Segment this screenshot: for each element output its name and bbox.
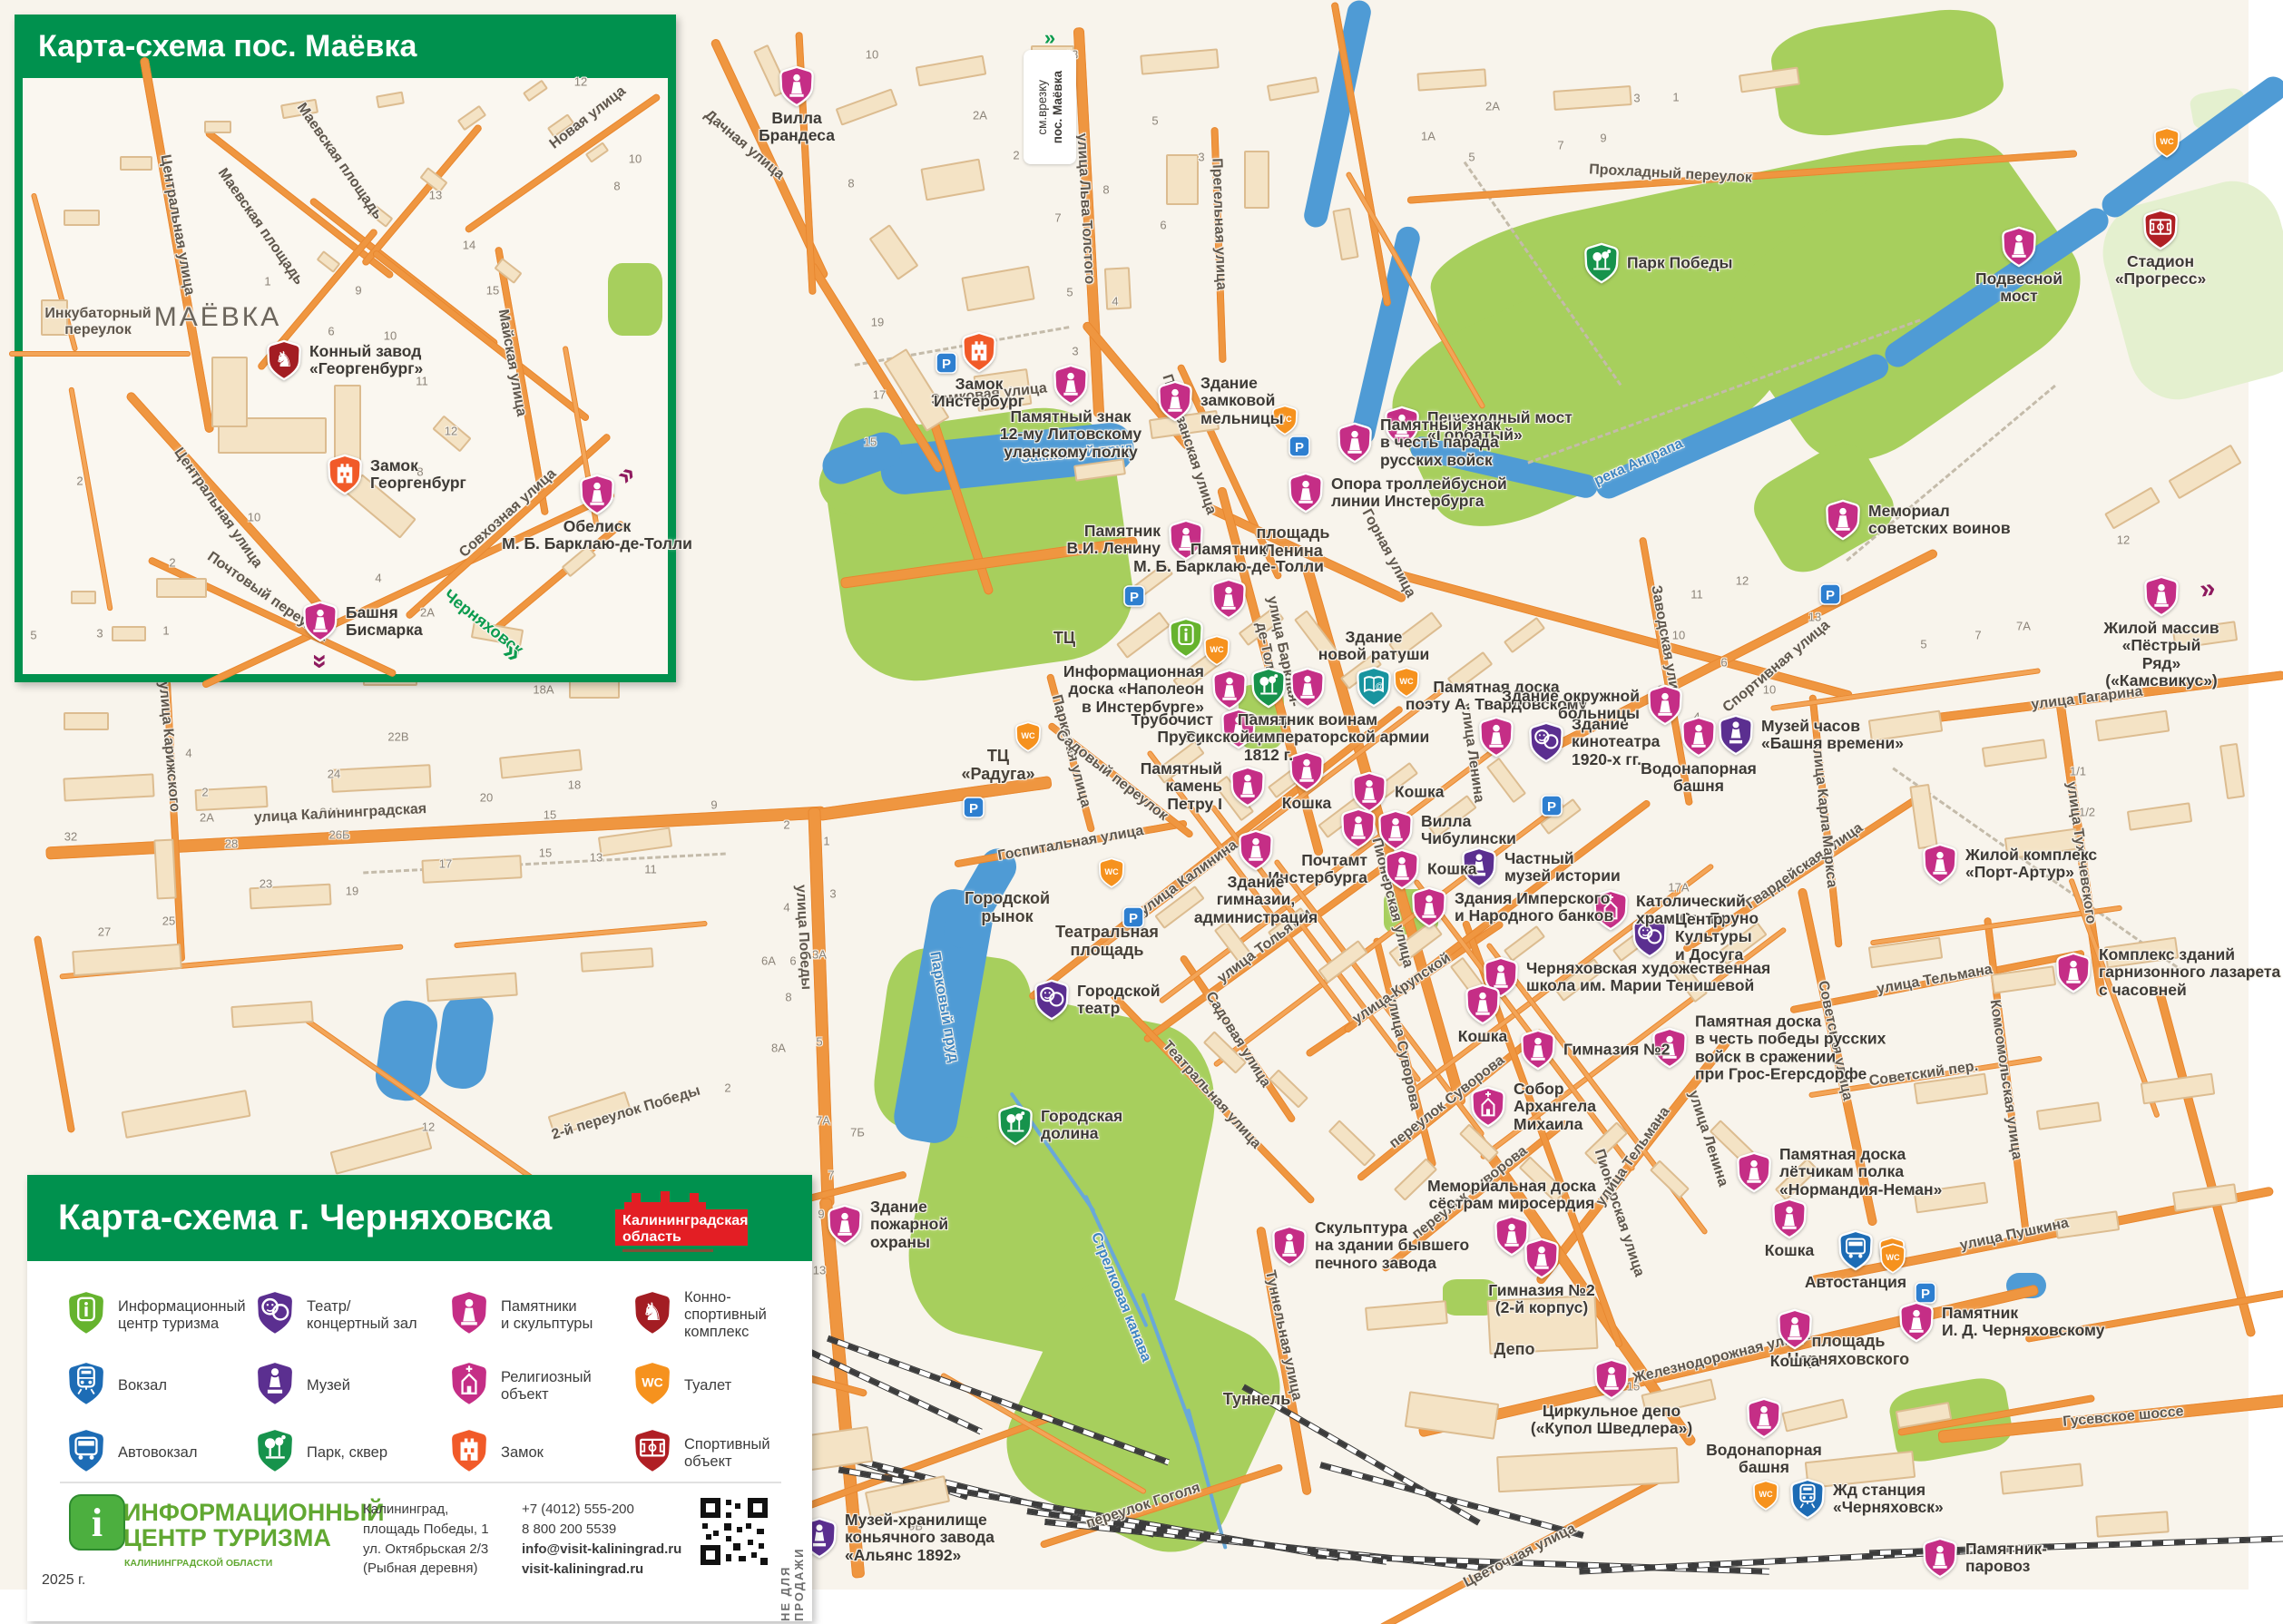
house-number: 7 xyxy=(828,1169,834,1182)
house-number: 20 xyxy=(480,791,493,805)
gorodskaya-dolina-park-icon[interactable] xyxy=(997,1104,1034,1147)
pamyatnik-barklau-label: Памятник М. Б. Барклаю-де-Толли xyxy=(1133,541,1324,576)
memorialnaya-doska-sestram-label: Мемориальная доска сёстрам миросердия xyxy=(1427,1178,1596,1213)
park-pobedy-park-icon[interactable] xyxy=(1583,242,1620,285)
religious-icon xyxy=(448,1359,490,1413)
znak-parada-russkih-voysk-label: Памятный знак в честь парада русских вой… xyxy=(1380,416,1501,469)
parking-icon[interactable]: P xyxy=(936,352,957,374)
legend-item-wc: WCТуалет xyxy=(632,1359,731,1413)
house-number: 14 xyxy=(463,239,475,252)
skulptura-pechnogo-zavoda-label: Скульптура на здании бывшего печного зав… xyxy=(1315,1219,1469,1272)
zamok-georgenburg-label: Замок Георгенбург xyxy=(370,457,466,493)
hudozhestvennaya-shkola-label: Черняховская художественная школа им. Ма… xyxy=(1526,960,1770,995)
gorodskoy-teatr-theatre-icon[interactable] xyxy=(1034,979,1070,1022)
zdanie-kinoteatra-theatre-icon[interactable] xyxy=(1528,721,1564,764)
gorodskaya-dolina-label: Городская долина xyxy=(1041,1108,1122,1143)
house-number: 12 xyxy=(574,75,587,89)
zdanie-zamkovoy-melnitsy-label: Здание замковой мельницы xyxy=(1200,375,1284,427)
wc-toilet-icon[interactable]: WC xyxy=(1752,1480,1779,1511)
koshka-4-label: Кошка xyxy=(1458,1028,1507,1045)
legend-item-horse: ♞Конно- спортивный комплекс xyxy=(632,1288,767,1342)
house-number: 8 xyxy=(848,177,854,191)
place-label: Городской рынок xyxy=(965,889,1050,925)
konny-zavod-georgenburg-label: Конный завод «Георгенбург» xyxy=(309,343,423,378)
koshka-2-label: Кошка xyxy=(1395,783,1444,800)
legend-item-label: Религиозный объект xyxy=(501,1369,592,1404)
house-number: 2А xyxy=(200,811,214,825)
place-label: Депо xyxy=(1494,1340,1535,1358)
info-doska-napoleon-monument-icon[interactable] xyxy=(1211,669,1248,711)
legend-item-train: Вокзал xyxy=(65,1359,167,1413)
house-number: 15 xyxy=(544,808,556,822)
house-number: 19 xyxy=(346,885,358,898)
house-number: 4 xyxy=(783,901,789,915)
house-number: 5 xyxy=(1066,286,1073,299)
svg-text:P: P xyxy=(1826,588,1835,603)
house-number: 32 xyxy=(64,830,77,844)
legend-item-label: Замок xyxy=(501,1444,544,1462)
house-number: 8 xyxy=(613,180,620,193)
house-number: 9 xyxy=(818,1208,824,1221)
legend-item-label: Вокзал xyxy=(118,1377,167,1394)
building xyxy=(71,591,96,604)
building xyxy=(120,156,152,171)
info-doska-napoleon-label: Информационная доска «Наполеон в Инстерб… xyxy=(1063,663,1204,716)
svg-text:♞: ♞ xyxy=(274,347,293,372)
centr-kultury-i-dosuga-label: Центр Культуры и Досуга xyxy=(1675,911,1752,964)
podvesnoy-most-monument-icon[interactable] xyxy=(2001,226,2037,269)
house-number: 10 xyxy=(1672,629,1685,642)
pamyatnik-voinam-imperatorskoy-armii-monument-icon[interactable] xyxy=(1289,667,1326,709)
mayovka-ref-line2: см.врезку xyxy=(1035,80,1049,135)
svg-text:P: P xyxy=(969,801,978,817)
znak-12-litovskomu-polku-label: Памятный знак 12-му Литовскому уланскому… xyxy=(1000,408,1141,461)
parking-icon[interactable]: P xyxy=(1819,583,1841,605)
house-number: 19 xyxy=(871,316,884,329)
vodonapornaya-bashnya-centr-label: Водонапорная башня xyxy=(1641,760,1757,796)
house-number: 15 xyxy=(486,284,499,298)
vodonapornaya-bashnya-centr-monument-icon[interactable] xyxy=(1680,716,1717,758)
house-number: 3А xyxy=(812,948,827,962)
house-number: 9 xyxy=(1600,132,1606,145)
villa-chibulinski-label: Вилла Чибулински xyxy=(1421,813,1516,848)
legend-item-park: Парк, сквер xyxy=(254,1426,387,1480)
svg-text:P: P xyxy=(1130,590,1139,605)
wc-toilet-icon[interactable]: WC xyxy=(2153,127,2180,159)
footer-address: Калининград, площадь Победы, 1 ул. Октяб… xyxy=(363,1500,489,1579)
place-label: Туннель xyxy=(1223,1390,1291,1408)
building xyxy=(1166,154,1199,205)
house-number: 2 xyxy=(201,786,208,799)
stadion-progress-label: Стадион «Прогресс» xyxy=(2115,253,2206,289)
gimnaziya-2-korpus-monument-icon[interactable] xyxy=(1524,1238,1560,1280)
house-number: 26Б xyxy=(329,828,350,842)
opora-trolleybusnoy-linii-label: Опора троллейбусной линии Инстербурга xyxy=(1331,475,1507,511)
park-pobedy-label: Парк Победы xyxy=(1627,254,1732,271)
legend-item-museum: Музей xyxy=(254,1359,350,1413)
house-number: 9 xyxy=(355,284,361,298)
zdanie-gimnazii-administratsiya-label: Здание гимназии, администрация xyxy=(1194,874,1318,926)
legend-item-sport: Спортивный объект xyxy=(632,1426,770,1480)
house-number: 17 xyxy=(439,857,452,871)
castle-icon xyxy=(448,1426,490,1480)
house-number: 7А xyxy=(816,1114,830,1128)
building xyxy=(112,626,146,641)
house-number: 10 xyxy=(629,152,642,166)
svg-text:WC: WC xyxy=(2160,137,2174,146)
pamyatnik-chernyahovskomu-monument-icon[interactable] xyxy=(1898,1301,1935,1344)
house-number: 11 xyxy=(644,863,657,876)
house-number: 18 xyxy=(568,778,581,792)
place-label: ТЦ xyxy=(1053,629,1075,647)
house-number: 13 xyxy=(429,189,442,202)
koshka-1-label: Кошка xyxy=(1282,795,1331,812)
house-number: 4 xyxy=(375,572,381,585)
mayovka-reference-note: » см.врезку пос. Маёвка xyxy=(1024,50,1076,164)
obelisk-barklau-de-tolli-monument-icon[interactable] xyxy=(579,474,615,516)
doska-normandiya-neman-monument-icon[interactable] xyxy=(1736,1151,1772,1194)
road xyxy=(9,351,191,357)
house-number: 8 xyxy=(785,991,791,1004)
footer-links[interactable]: info@visit-kaliningrad.ru visit-kalining… xyxy=(522,1540,681,1580)
museum-icon xyxy=(254,1359,296,1413)
konny-zavod-georgenburg-horse-icon[interactable]: ♞ xyxy=(266,339,302,382)
street-label: Инкубаторный переулок xyxy=(44,306,151,338)
pestry-ryad-label: Жилой массив «Пёстрый Ряд» («Камсвикус») xyxy=(2101,620,2222,690)
skulptura-pechnogo-zavoda-monument-icon[interactable] xyxy=(1271,1225,1308,1267)
house-number: 3 xyxy=(96,627,103,641)
pamyatnik-chernyahovskomu-label: Памятник И. Д. Черняховскому xyxy=(1942,1305,2104,1340)
house-number: 7 xyxy=(1974,629,1981,642)
house-number: 10 xyxy=(384,329,397,343)
zdaniya-imperskogo-i-narodnogo-bankov-monument-icon[interactable] xyxy=(1411,886,1447,929)
house-number: 7А xyxy=(2016,620,2031,633)
divider xyxy=(60,1482,781,1483)
house-number: 5 xyxy=(1920,638,1926,651)
house-number: 12 xyxy=(1736,574,1749,588)
house-number: 2 xyxy=(724,1081,730,1095)
svg-text:i: i xyxy=(92,1501,103,1545)
legend-items: Информационный центр туризмаТеатр/ конце… xyxy=(27,1261,812,1488)
villa-chibulinski-monument-icon[interactable] xyxy=(1377,809,1414,852)
org-title: ИНФОРМАЦИОННЫЙЦЕНТР ТУРИЗМА xyxy=(123,1500,385,1551)
zhd-stantsiya-chernyahovsk-label: Жд станция «Черняховск» xyxy=(1833,1482,1944,1517)
svg-text:область: область xyxy=(622,1229,681,1245)
footer-phones: +7 (4012) 555-200 8 800 200 5539 xyxy=(522,1500,634,1540)
house-number: 27 xyxy=(98,925,111,939)
theatre-icon xyxy=(254,1288,296,1342)
house-number: 24 xyxy=(328,768,340,781)
koshka-6-monument-icon[interactable] xyxy=(1777,1308,1813,1351)
house-number: 1 xyxy=(162,624,169,638)
vodonapornaya-bashnya-stantsiya-monument-icon[interactable] xyxy=(1746,1397,1782,1440)
koshka-3-label: Кошка xyxy=(1427,860,1476,877)
legend-item-religious: Религиозный объект xyxy=(448,1359,592,1413)
house-number: 2 xyxy=(783,818,789,832)
house-number: 15 xyxy=(864,435,877,449)
house-number: 4 xyxy=(185,747,191,760)
house-number: 1 xyxy=(264,275,270,289)
building xyxy=(64,210,100,226)
pamyatnik-barklau-monument-icon[interactable] xyxy=(1210,578,1247,621)
wc-toilet-icon[interactable]: WC xyxy=(1879,1243,1906,1275)
znak-12-litovskomu-polku-monument-icon[interactable] xyxy=(1053,364,1089,406)
monument-icon xyxy=(448,1288,490,1342)
gorodskoy-teatr-label: Городской театр xyxy=(1077,983,1160,1018)
house-number: 3 xyxy=(1072,345,1078,358)
mayovka-ref-line1: пос. Маёвка xyxy=(1051,71,1064,143)
building xyxy=(64,712,109,730)
lazaret-label: Комплекс зданий гарнизонного лазарета с … xyxy=(2099,946,2280,999)
port-artur-label: Жилой комплекс «Порт-Артур» xyxy=(1965,846,2097,882)
house-number: 2 xyxy=(76,474,83,488)
skver-geroev-1812-park-icon[interactable] xyxy=(1250,667,1287,709)
legend-item-label: Информационный центр туризма xyxy=(118,1298,246,1333)
house-number: 10 xyxy=(248,511,260,524)
map-document: Дачная улицаулица Льва ТолстогоПрегельна… xyxy=(0,0,2283,1624)
legend-panel: Карта-схема г. Черняховска Калининградск… xyxy=(27,1175,812,1621)
house-number: 12 xyxy=(2117,533,2130,547)
park-area xyxy=(608,263,662,336)
legend-item-label: Парк, сквер xyxy=(307,1444,387,1462)
tourism-info-logo: i xyxy=(69,1494,125,1565)
house-number: 2А xyxy=(1485,100,1500,113)
parking-icon[interactable]: P xyxy=(1541,795,1563,817)
villa-brandesa-monument-icon[interactable] xyxy=(779,65,815,108)
svg-text:@: @ xyxy=(1376,680,1385,690)
opora-trolleybusnoy-linii-monument-icon[interactable] xyxy=(1288,472,1324,514)
house-number: 2 xyxy=(169,556,175,570)
svg-text:P: P xyxy=(1295,440,1304,455)
doska-gros-egersdorf-label: Памятная доска в честь победы русских во… xyxy=(1695,1013,1886,1083)
legend-item-bus: Автовокзал xyxy=(65,1426,198,1480)
svg-text:P: P xyxy=(1129,911,1138,926)
koshka-3-monument-icon[interactable] xyxy=(1384,848,1420,891)
obelisk-barklau-de-tolli-label: Обелиск М. Б. Барклаю-де-Толли xyxy=(502,518,692,553)
building xyxy=(211,357,248,427)
pamyatny-kamen-petru-label: Памятный камень Петру I xyxy=(1141,760,1222,813)
svg-text:WC: WC xyxy=(1759,1490,1773,1499)
parking-icon[interactable]: P xyxy=(963,797,985,818)
legend-item-monument: Памятники и скульптуры xyxy=(448,1288,593,1342)
house-number: 5 xyxy=(816,1035,822,1049)
legend-item-label: Театр/ концертный зал xyxy=(307,1298,417,1333)
qr-code xyxy=(697,1494,771,1573)
port-artur-monument-icon[interactable] xyxy=(1922,843,1958,885)
house-number: 5 xyxy=(1468,151,1475,164)
avtostantsiya-label: Автостанция xyxy=(1805,1274,1906,1291)
sobor-arhangela-mihaila-label: Собор Архангела Михаила xyxy=(1514,1081,1596,1133)
inset-header: Карта-схема пос. Маёвка xyxy=(15,15,676,78)
sport-icon xyxy=(632,1426,673,1480)
horse-icon: ♞ xyxy=(632,1288,673,1342)
house-number: 5 xyxy=(1151,114,1158,128)
house-number: 7 xyxy=(1054,211,1061,225)
svg-text:WC: WC xyxy=(1886,1253,1900,1262)
zhd-stantsiya-chernyahovsk-train-icon[interactable] xyxy=(1789,1478,1826,1521)
building xyxy=(1244,151,1269,209)
zdanie-okruzhnoy-bolnitsy-label: Здание окружной больницы xyxy=(1502,688,1640,723)
zdanie-novoy-ratushi-label: Здание новой ратуши xyxy=(1318,629,1430,664)
house-number: 18А xyxy=(533,683,554,697)
koshka-5-monument-icon[interactable] xyxy=(1771,1198,1808,1240)
house-number: 1А xyxy=(1421,130,1435,143)
svg-text:P: P xyxy=(1547,799,1556,815)
park-icon xyxy=(254,1426,296,1480)
legend-item-castle: Замок xyxy=(448,1426,544,1480)
sobor-arhangela-mihaila-religious-icon[interactable] xyxy=(1470,1086,1506,1129)
svg-text:WC: WC xyxy=(1021,731,1035,740)
svg-text:♞: ♞ xyxy=(642,1298,663,1326)
stadion-progress-sport-icon[interactable] xyxy=(2142,209,2179,251)
parking-icon[interactable]: P xyxy=(1288,435,1310,457)
legend-item-label: Туалет xyxy=(684,1377,731,1394)
house-number: 2 xyxy=(1013,149,1019,162)
house-number: 28 xyxy=(225,837,238,851)
zamok-insterburg-castle-icon[interactable] xyxy=(961,331,997,374)
zdaniya-imperskogo-i-narodnogo-bankov-label: Здания Имперского и Народного банков xyxy=(1455,890,1613,925)
inset-title: Карта-схема пос. Маёвка xyxy=(15,29,416,64)
memorial-sovetskih-voinov-label: Мемориал советских воинов xyxy=(1868,503,2011,538)
avtostantsiya-bus-icon[interactable] xyxy=(1837,1229,1874,1272)
legend-item-info: Информационный центр туризма xyxy=(65,1288,246,1342)
house-number: 3 xyxy=(829,887,836,901)
house-number: 9 xyxy=(710,798,717,812)
train-icon xyxy=(65,1359,107,1413)
parking-icon[interactable]: P xyxy=(1122,906,1144,928)
house-number: 6 xyxy=(1160,219,1166,232)
vodonapornaya-bashnya-stantsiya-label: Водонапорная башня xyxy=(1706,1442,1822,1477)
znak-parada-russkih-voysk-monument-icon[interactable] xyxy=(1337,422,1373,465)
pamyatnik-parovoz-label: Памятник- паровоз xyxy=(1965,1541,2047,1576)
house-number: 2А xyxy=(973,109,987,122)
info-centr-turizma-info-icon[interactable] xyxy=(1168,617,1204,660)
building xyxy=(156,578,207,598)
house-number: 25 xyxy=(162,915,175,928)
zamok-georgenburg-castle-icon[interactable] xyxy=(327,454,363,496)
legend-item-label: Автовокзал xyxy=(118,1444,198,1462)
pochtamt-insterburga-monument-icon[interactable] xyxy=(1340,807,1377,850)
zdanie-novoy-ratushi-book-icon[interactable]: @ xyxy=(1356,666,1392,709)
info-icon xyxy=(65,1288,107,1342)
house-number: 10 xyxy=(866,48,878,62)
house-number: 7Б xyxy=(850,1126,865,1140)
podvesnoy-most-label: Подвесной мост xyxy=(1975,270,2063,306)
house-number: 8А xyxy=(771,1042,786,1055)
svg-text:P: P xyxy=(942,357,951,372)
house-number: 6А xyxy=(761,954,776,968)
house-number: 13 xyxy=(590,851,603,865)
house-number: 4 xyxy=(1112,295,1118,308)
lazaret-monument-icon[interactable] xyxy=(2055,952,2092,994)
house-number: 3 xyxy=(1633,92,1640,105)
memorial-sovetskih-voinov-monument-icon[interactable] xyxy=(1825,499,1861,542)
villa-brandesa-label: Вилла Брандеса xyxy=(759,110,835,145)
koshka-4-monument-icon[interactable] xyxy=(1465,983,1501,1026)
gimnaziya-2-monument-icon[interactable] xyxy=(1520,1029,1556,1071)
zdanie-pozharnoy-ohrany-monument-icon[interactable] xyxy=(827,1204,863,1247)
legend-item-theatre: Театр/ концертный зал xyxy=(254,1288,417,1342)
zdanie-pozharnoy-ohrany-label: Здание пожарной охраны xyxy=(870,1198,948,1251)
wc-icon: WC xyxy=(632,1359,673,1413)
muzey-chasov-museum-icon[interactable] xyxy=(1718,714,1754,757)
house-number: 12 xyxy=(422,1120,435,1134)
not-for-sale-note: НЕ ДЛЯ ПРОДАЖИ xyxy=(779,1488,797,1621)
house-number: 23 xyxy=(260,877,272,891)
gimnaziya-2-korpus-label: Гимназия №2 (2-й корпус) xyxy=(1488,1282,1594,1317)
svg-text:WC: WC xyxy=(1210,645,1224,654)
muzey-alyans-1892-label: Музей-хранилище коньячного завода «Альян… xyxy=(845,1511,995,1564)
muzey-chasov-label: Музей часов «Башня времени» xyxy=(1761,718,1904,753)
svg-text:WC: WC xyxy=(642,1375,663,1390)
building xyxy=(153,838,176,899)
tsirkulnoe-depo-label: Циркульное депо («Купол Шведлера») xyxy=(1531,1403,1692,1438)
trubochist-prusik-label: Трубочист Прусик xyxy=(1132,711,1214,747)
house-number: 6 xyxy=(328,325,334,338)
direction-arrow-icon: » xyxy=(305,654,336,664)
pamyatnik-voinam-imperatorskoy-armii-label: Памятник воинам Русской императорской ар… xyxy=(1186,711,1430,747)
house-number: 22В xyxy=(387,730,408,744)
house-number: 15 xyxy=(539,846,552,860)
doska-normandiya-neman-label: Памятная доска лётчикам полка «Нормандия… xyxy=(1779,1146,1942,1198)
wc-toilet-icon[interactable]: WC xyxy=(1014,721,1042,753)
chastny-muzey-istorii-label: Частный музей истории xyxy=(1504,850,1621,885)
kaliningrad-region-logo: Калининградскаяобласть xyxy=(615,1191,779,1261)
house-number: 1 xyxy=(823,835,829,848)
house-number: 11 xyxy=(1690,588,1703,602)
legend-item-label: Памятники и скульптуры xyxy=(501,1298,593,1333)
koshka-5-label: Кошка xyxy=(1765,1242,1814,1259)
koshka-6-label: Кошка xyxy=(1770,1353,1819,1370)
house-number: 5 xyxy=(30,629,36,642)
house-number: 6 xyxy=(1720,656,1727,670)
svg-text:WC: WC xyxy=(1104,867,1119,876)
zdanie-zamkovoy-melnitsy-monument-icon[interactable] xyxy=(1157,380,1193,423)
org-subtitle: КАЛИНИНГРАДСКОЙ ОБЛАСТИ xyxy=(124,1558,272,1570)
house-number: 1/1 xyxy=(2070,765,2086,778)
bus-icon xyxy=(65,1426,107,1480)
map-title: Карта-схема г. Черняховска xyxy=(27,1198,552,1238)
edition-year: 2025 г. xyxy=(42,1572,85,1589)
pamyatnik-parovoz-monument-icon[interactable] xyxy=(1922,1537,1958,1580)
wc-toilet-icon[interactable]: WC xyxy=(1098,857,1125,889)
house-number: 17 xyxy=(873,388,886,402)
svg-text:Калининградская: Калининградская xyxy=(622,1213,748,1228)
pestry-ryad-monument-icon[interactable] xyxy=(2143,575,2180,618)
house-number: 8 xyxy=(1102,183,1109,197)
legend-item-label: Спортивный объект xyxy=(684,1436,770,1471)
house-number: 12 xyxy=(445,425,457,438)
house-number: 13 xyxy=(813,1264,826,1277)
pamyatny-kamen-petru-monument-icon[interactable] xyxy=(1230,766,1266,808)
gimnaziya-2-label: Гимназия №2 xyxy=(1563,1041,1670,1058)
wc-toilet-icon[interactable]: WC xyxy=(1203,635,1230,667)
building xyxy=(204,121,231,133)
tsirkulnoe-depo-monument-icon[interactable] xyxy=(1593,1358,1630,1401)
svg-text:P: P xyxy=(1921,1286,1930,1302)
place-label: МАЁВКА xyxy=(154,302,282,333)
bashnya-bismarka-monument-icon[interactable] xyxy=(302,601,338,643)
zamok-insterburg-label: Замок Инстербург xyxy=(934,376,1024,411)
bashnya-bismarka-label: Башня Бисмарка xyxy=(346,604,423,640)
arrow-up-icon: » xyxy=(1044,32,1055,44)
parking-icon[interactable]: P xyxy=(1123,585,1145,607)
building xyxy=(63,773,154,801)
house-number: 1 xyxy=(1672,91,1679,104)
house-number: 7 xyxy=(1557,139,1563,152)
house-number: 3 xyxy=(1198,151,1204,164)
legend-item-label: Музей xyxy=(307,1377,350,1394)
